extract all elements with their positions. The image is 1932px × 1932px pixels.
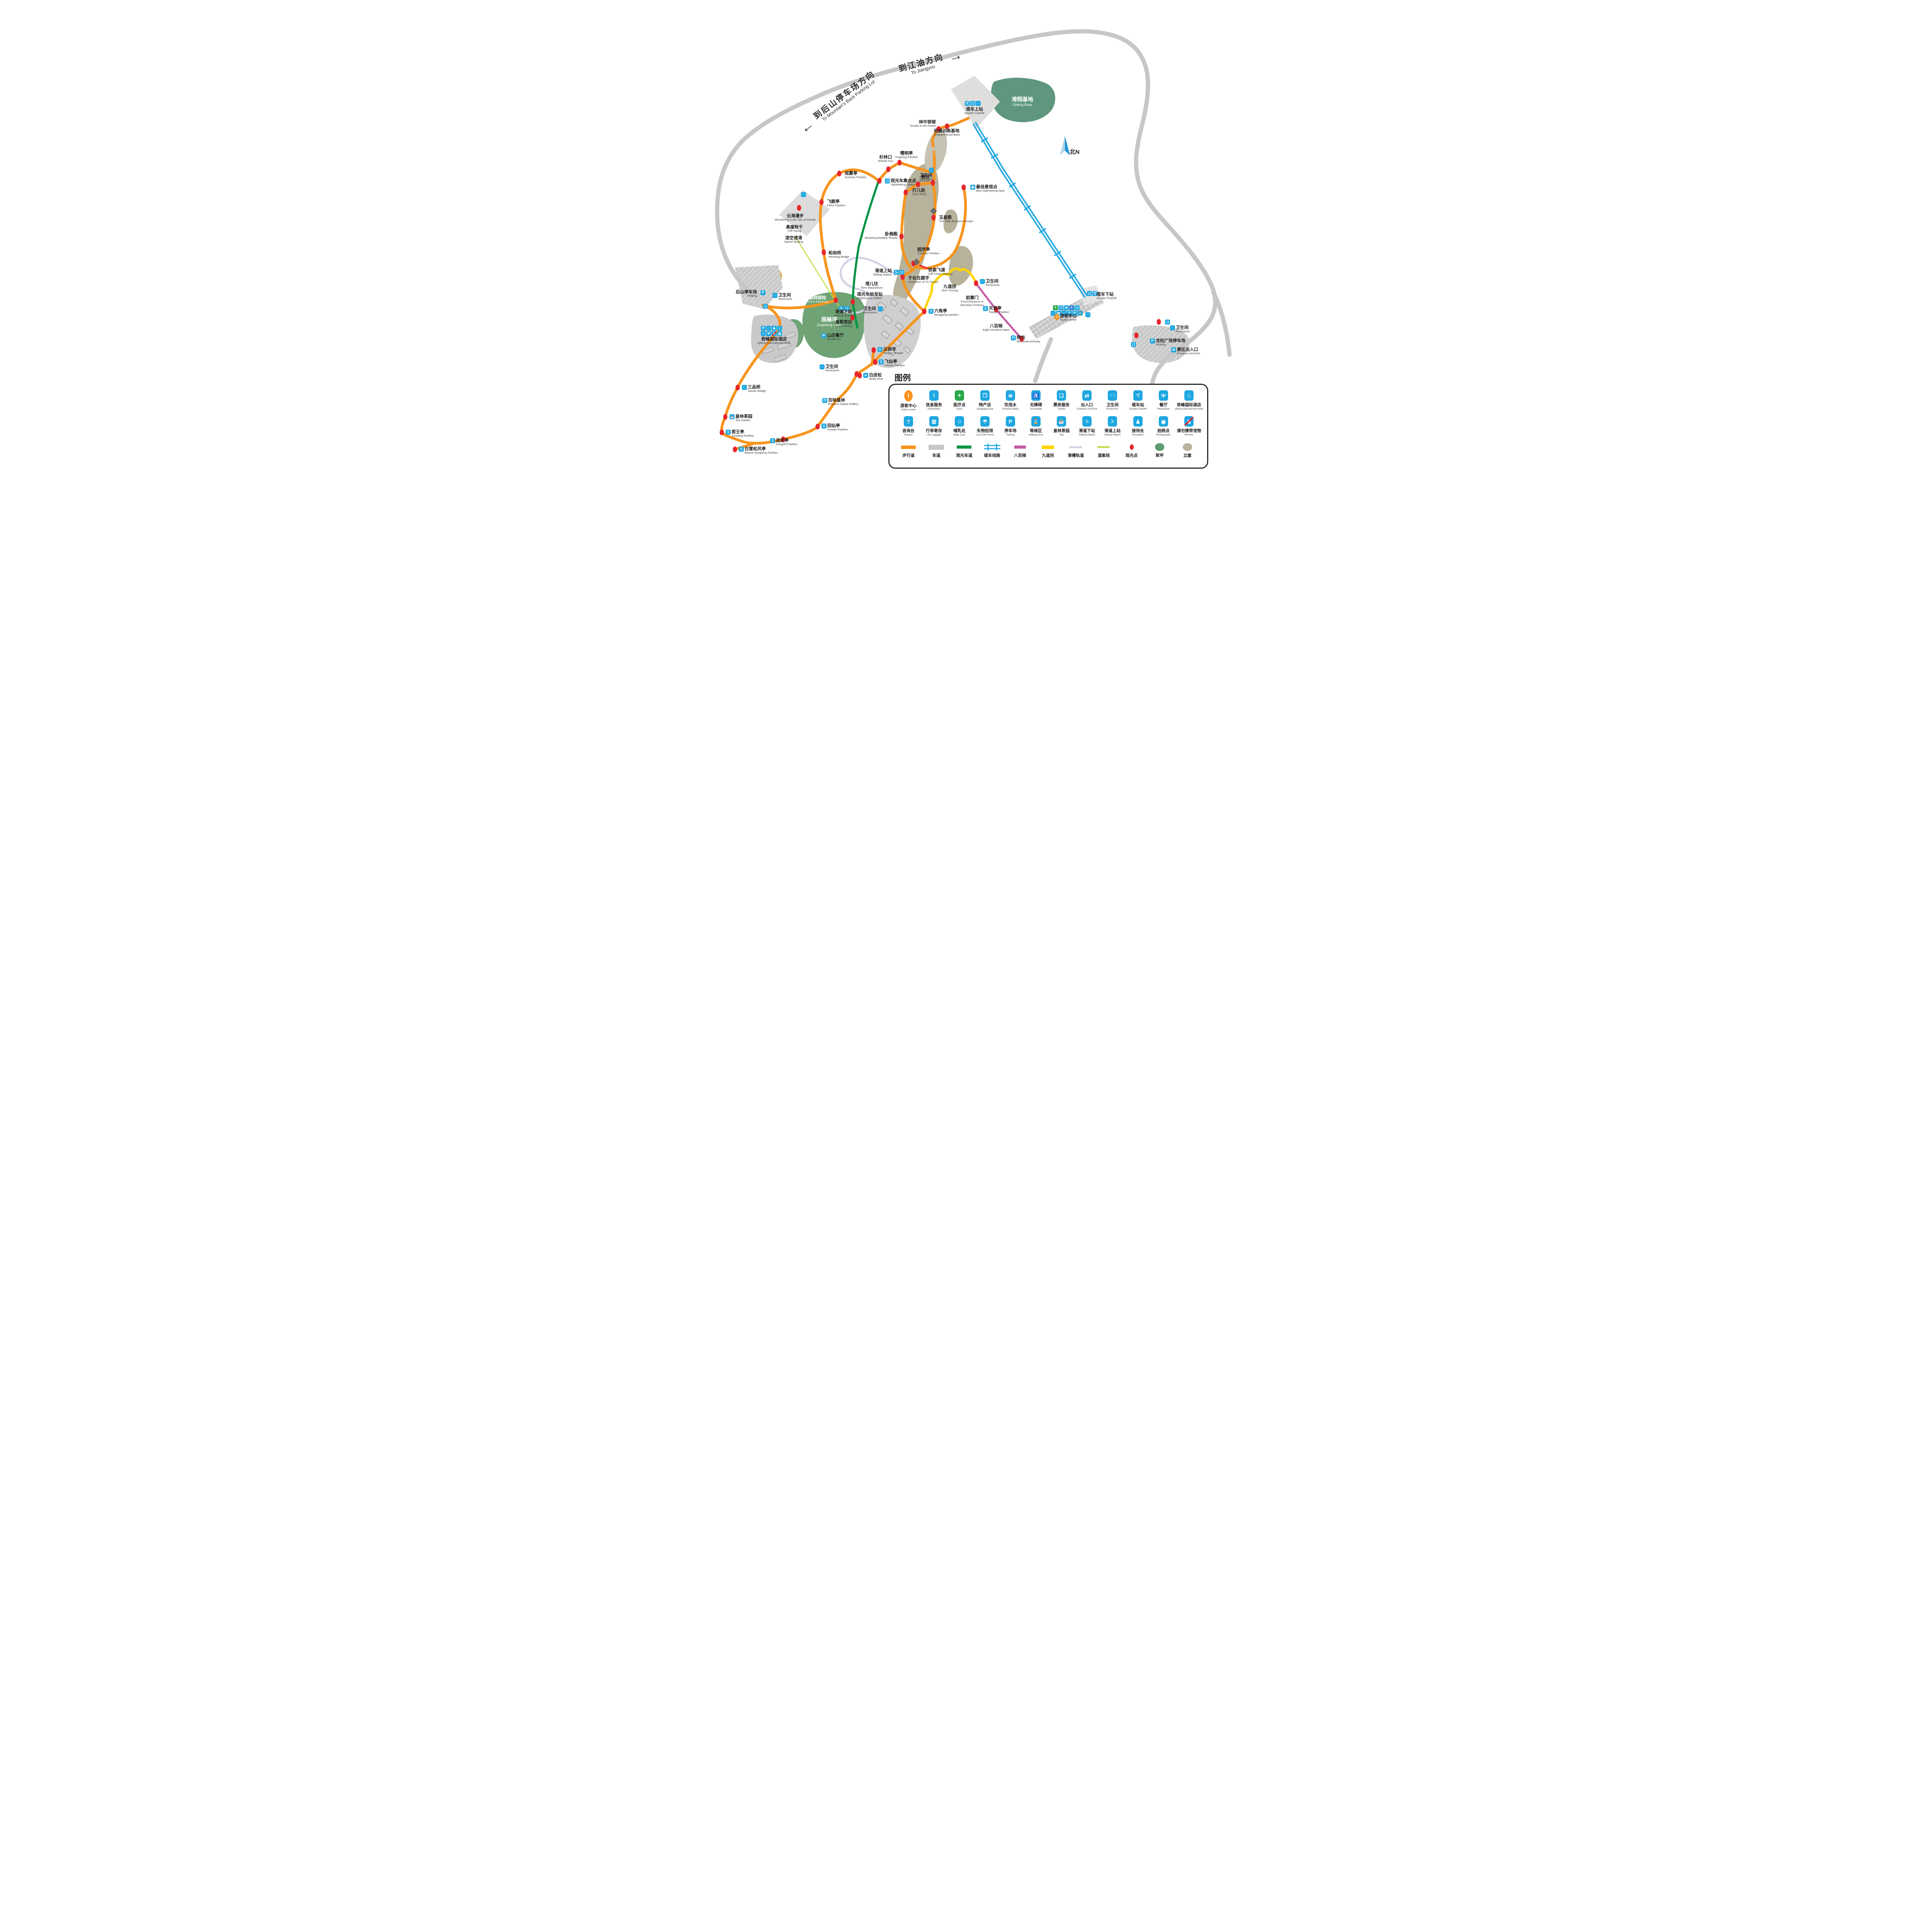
poi-restrooms: ♂♀卫生间Restrooms [820,364,839,372]
legend-label-zh: 等候区 [1030,428,1042,434]
sightseeing-spot-dot [900,234,904,240]
accessible-icon: ♿ [1069,305,1074,310]
sightseeing-spot-dot [822,250,826,255]
poi-text: 云海漫步Wondering in the Sea of Clouds [775,214,816,222]
legend-line-立崖: 立崖 [1175,443,1200,458]
sightseeing-spot-dot [974,281,978,286]
toilet-icon: ♂♀ [976,101,981,106]
ticket-icon: ❏ [970,101,975,106]
poi-label-en: Reclining Buddha Temple [865,236,898,240]
sightseeing-spot-dot [962,185,966,190]
sightseeing-spot-dot [1134,333,1139,338]
legend-label-zh: 票务服务 [1053,402,1070,408]
poi-text: 白皮松White Pine [869,373,883,381]
legend-label-en: Drinking Water [1002,408,1019,410]
poi-text: 悬崖秋千Cliff Swing [786,225,803,233]
ticket-icon: ❏ [1165,320,1170,325]
poi-label-en: Wondering in the Sea of Clouds [775,218,816,221]
sightseeing-spot-dot [723,414,728,420]
poi-text: 拓展训练基地Outward-Bund Base [934,129,960,137]
legend-line-sample [1070,443,1082,451]
icon-group: +❒≋♿❏ [1053,305,1080,310]
legend-item-accessible: ♿无障碍Accessible [1023,390,1049,411]
poi-text: 观雾亭Guanwu Pavilion [845,171,866,179]
poi-da-er-rock: 打儿岩Da'er Rock [912,188,927,196]
waiting-icon: ⌛ [1078,311,1083,316]
icon-group: ❏ [1131,342,1136,347]
toilet-icon: ♂♀ [820,364,825,369]
poi-huixian-pavilion: ♖回仙亭Huixian Pavilion [821,423,848,432]
lost-icon: ☂ [980,416,990,427]
info-icon: i [929,390,939,401]
toilet-icon: ♂♀ [1085,312,1090,317]
poi-label-en: Restrooms [986,284,1000,287]
poi-feihe-pavilion: 飞鹤亭Feihe Pavilion [827,199,845,207]
poi-text: 皇林茶园Tea Garden [735,414,752,422]
legend-item-drinking-water: ≋饮用水Drinking Water [998,390,1023,411]
poi-rock-climbing: 攀岩场Rock Climbing [928,147,947,155]
poi-text: 杉林口Shanlin Kou [878,155,893,163]
poi-label-en: Outward-Bund Base [934,133,960,136]
legend-label-zh: 滑槽轨道 [1068,452,1084,458]
legend-label-en: Enquiry [904,434,913,436]
enquiry-icon: ? [904,416,913,427]
poi-guanfeng-lawn: 观峰坪Guanfeng Lawn [817,317,842,327]
legend-line-八百梯: 八百梯 [1007,443,1033,458]
chairlift-icon [1133,390,1143,401]
legend-line-观光点: 观光点 [1119,443,1145,458]
ticket-icon: ❏ [1075,305,1080,310]
poi-tianyin-pavilion: ♖天音亭Tianyin Pavilion [983,306,1009,314]
legend-line-sample [1014,443,1026,451]
poi-text: 攀岩场Rock Climbing [928,147,947,155]
legend-label-zh: 步行道 [902,452,915,458]
legend-item-shopping-area: ❒特产店Shopping Area [972,390,998,411]
icon-group: ⌂Ψ♞▥ [761,331,782,336]
nopets-icon: ♞ [1184,416,1194,427]
sightseeing-spot-dot [720,430,724,435]
legend-label-zh: 九道拐 [1042,452,1054,458]
water-icon: ≋ [1006,390,1015,401]
icon-group: P♂♀♟i [761,326,782,331]
pavilion-icon: ♖ [878,347,883,352]
poi-nine-turning: 九道拐Nine Turning [942,284,958,293]
restaurant-icon: Ψ [766,331,771,336]
info-icon: i [777,326,782,331]
poi-text: 六角亭hexagonal pavilion [934,309,958,317]
poi-label-en: Parking [1156,343,1185,346]
sightseeing-spot-dot [932,215,936,221]
sightseeing-spot-dot [872,347,876,353]
poi-label-en: Huixian Pavilion [827,428,848,431]
poi-label-zh: 观峰坪 [821,317,837,323]
bridge-icon: ∩ [742,385,747,390]
tea-icon: ☕ [1057,416,1066,427]
legend-item-no-pets: ♞请勿携带宠物No Pets [1176,416,1202,436]
legend-line-滑槽轨道: 滑槽轨道 [1063,443,1088,458]
icon-group: ♂♀ [801,192,806,197]
legend-label-en: Visitor center [901,408,916,411]
poi-guanwu-pavilion: 观雾亭Guanwu Pavilion [845,171,866,179]
shopping-icon: ❒ [980,390,990,401]
icon-group [914,260,919,264]
poi-text: 前寨门Front Entrance ofMountain Fortress [961,296,984,307]
poi-best-sightseeing-spot: ◉最佳景观点Best Sightseeing Spot [970,185,1005,193]
legend-label-en: Information [928,408,940,410]
temple3d-icon [930,208,937,214]
scenic-area-map: 到江油方向 To Jiangyou → ← 到后山停车场方向 To Mounta… [663,0,1269,487]
legend-label-en: Baby Care [954,434,966,436]
poi-label-zh: 滑翔基地 [1012,97,1033,103]
poi-text: 景区出入口Entrance And Exit [1177,347,1200,355]
poi-label-en: Cliff Swing [787,230,801,233]
poi-label-en: Chuntai [920,179,930,182]
poi-text: 君王亭Junwang Pavilion [731,430,754,438]
legend-item-baby-care: ☺哺乳处Baby Care [947,416,972,436]
legend-label-zh: 缆车站 [1132,402,1144,408]
clinic-icon: + [955,390,964,401]
restaurant-icon: Ψ [1159,390,1168,401]
poi-text: 打儿岩Da'er Rock [912,188,927,196]
poi-text: 滑翔基地Gliding Base [1012,97,1033,107]
legend-line-草坪: 草坪 [1147,443,1172,458]
legend-line-sample [929,443,944,451]
legend-label-zh: 立崖 [1183,452,1191,458]
poi-label-en: Tianyin Pavilion [989,311,1009,314]
poi-text: 缆车下站Double Chairlift [1097,292,1116,300]
poi-label-en: Junwang Pavilion [731,434,754,437]
legend-label-en: Parking [1006,434,1015,436]
poi-label-en: Feihe Pavilion [827,204,845,207]
poi-wondering-in-the-sea-of-clouds: 云海漫步Wondering in the Sea of Clouds [775,214,816,222]
sightseeing-spot-dot [837,171,842,177]
poi-label-en: hexagonal pavilion [934,313,958,316]
poi-label-en: Gliding Base [1012,103,1032,107]
icon-group: ♂♀ [1085,312,1090,317]
legend-item-restrooms: ♂♀卫生间Restrooms [1100,390,1125,411]
legend-label-en: Clinic [956,408,963,410]
legend-item-tickets: ❏票务服务Tickets [1049,390,1074,411]
poi-text: 奇峰国际酒店Qifeng International Hotel [757,337,790,345]
poi-cliff-swing: 悬崖秋千Cliff Swing [786,225,803,233]
legend-line-sample [1130,443,1134,451]
poi-text: 塔儿坟Ta'er Mausoleum [861,282,883,290]
poi-text: 森林探险Forest Adventure [806,296,828,304]
poi-label-en: Songshi Pavilion [776,443,797,446]
poi-parking: P龙柱广场停车场Parking [1150,338,1185,347]
legend-label-zh: 哺乳处 [953,428,966,434]
legend-line-九道拐: 九道拐 [1035,443,1061,458]
north-label: 北N [1070,148,1080,156]
sightseeing-spot-dot [733,447,737,452]
poi-text: 卫生间Restrooms [825,364,839,372]
legend-label-zh: 信息服务 [926,402,942,408]
poi-text: 林中穿梭Shuttle in the Forest [910,120,936,128]
skier-icon [894,270,899,275]
icon-group: ❏ [894,270,904,275]
poi-double-chairlift: 缆车上站Double Chairlift [964,107,984,115]
poi-visitor-center: i游客中心Visitor center [1054,314,1077,322]
legend-label-en: Restrooms [1106,408,1118,410]
legend-line-sample [901,443,916,451]
poi-parking: 后山停车场Parking [736,290,757,298]
legend-line-sample [1183,443,1192,451]
icon-group: ❏ [763,304,768,309]
legend-label-zh: 医疗点 [953,402,966,408]
legend-label-zh: 车道 [932,452,940,458]
poi-the-jade-emperor-temple: 玉皇殿The Jade Emperor Temple [939,215,973,223]
legend-label-zh: 观光点 [1126,452,1138,458]
poi-songshi-pavilion: ♖送史亭Songshi Pavilion [770,438,797,446]
poi-text: 卫生间Restrooms [986,279,1000,287]
legend-line-观光车道: 观光车道 [951,443,977,458]
pine-icon: ♣ [863,373,868,378]
luggage-icon: ▥ [777,331,782,336]
luggage-icon: ▥ [929,416,939,427]
legend-label-en: Reception [1132,434,1143,436]
poi-chuntai: 春台Chuntai [920,175,930,183]
poi-gliding-base: 滑翔基地Gliding Base [1012,97,1033,107]
poi-label-en: Tea Garden [735,419,752,422]
poi-qifeng-international-hotel: 奇峰国际酒店Qifeng International Hotel [757,337,790,345]
sightseeing-spot-dot [858,373,862,379]
poi-text: 八百梯Eight Hundred Stairs [983,324,1009,332]
legend-label-zh: 八百梯 [1014,452,1026,458]
reception-icon: ♟ [1133,416,1143,427]
legend-label-zh: 行李寄存 [926,428,942,434]
poi-label-en: Shanlin Kou [878,160,893,163]
legend-item-restaurant: Ψ餐厅Restaurant [1151,390,1176,411]
legend-label-zh: 无障碍 [1030,402,1042,408]
sightseeing-spot-dot [904,190,908,196]
legend-label-zh: 滑道下站 [1079,428,1095,434]
poi-label-en: Emperor Statue Gallery [828,403,858,406]
poi-text: 游客中心Visitor center [1060,314,1077,322]
poi-text: 三品桥Sanpin Bridge [748,385,766,393]
poi-outward-bund-base: 拓展训练基地Outward-Bund Base [934,129,960,137]
poi-text: 卫生间Restrooms [1176,325,1190,333]
poi-label-en: Restrooms [1176,330,1190,333]
poi-yunyan-temple: ♖云岩寺Yunyan Temple [878,347,903,355]
legend-label-zh: 游客中心 [900,403,917,408]
sightseeing-spot-dot [834,298,838,303]
poi-restrooms: ♂♀卫生间Restrooms [980,279,1000,287]
poi-label-en: Forest Adventure [806,300,828,303]
legend-label-zh: 接待处 [1132,428,1144,434]
pavilion-icon: ♖ [726,430,731,435]
legend-services-row-1: i游客中心Visitor centeri信息服务Information+医疗点C… [896,390,1200,411]
visitor-icon: i [904,390,913,401]
poi-cliff-chain-walking: 铁索飞渡Cliff Chain Walking [928,268,952,276]
legend-label-en: Restaurant [1157,408,1170,410]
poi-text: 飞仙亭Feixian Pavilion [884,359,905,367]
legend-label-en: Tickets [1058,408,1065,410]
poi-restrooms: ♂♀卫生间Restrooms [1170,325,1190,333]
legend-line-步行道: 步行道 [896,443,921,458]
poi-front-entrance-of: 前寨门Front Entrance ofMountain Fortress [961,296,984,307]
sightseeing-spot-dot [886,167,891,172]
legend-label-en: Gliding Station [1079,434,1095,436]
legend-label-en: Shopping Area [977,408,993,410]
poi-text: 凌空速滑Speed Skating [784,236,803,244]
legend-line-sample [1042,443,1054,451]
legend-lines-row: 步行道车道观光车道缆车线路八百梯九道拐滑槽轨道溜索线观光点草坪立崖 [896,443,1200,458]
legend-label-en: Lost And Found [976,434,994,436]
poi-text: 春台Chuntai [920,175,930,183]
legend-label-zh: 奇峰国际酒店 [1177,402,1201,408]
poi-text: 后山停车场Parking [736,290,757,298]
toilet-icon: ♂♀ [801,192,806,197]
legend-item-lost-and-found: ☂失物招领Lost And Found [972,416,998,436]
poi-emperor-statue-gallery: Π百味皇林Emperor Statue Gallery [822,398,858,406]
legend-item-left-luggage: ▥行李寄存Left Luggage [921,416,947,436]
legend-line-sample [957,443,971,451]
legend-label-zh: 草坪 [1155,452,1163,458]
poi-text: 滑道上站Gliding Station [873,269,892,277]
poi-text: 嘤明亭Yingming Pavilion [895,151,918,159]
poi-restaurant: Ψ山庄餐厅Restaurant [821,333,844,341]
sightseeing-spot-dot [851,299,855,305]
waiting-icon: ⌛ [1031,416,1041,427]
poi-label-en: Best Sightseeing Spot [976,189,1005,192]
skier-icon [1082,416,1092,427]
icon-group: ♂♀ [929,168,934,173]
ticket-icon: ❏ [1131,342,1136,347]
poi-hexagonal-pavilion: ♖六角亭hexagonal pavilion [929,309,958,317]
legend-label-zh: 咨询台 [902,428,915,434]
baby-icon: ☺ [955,416,964,427]
visitor-icon: i [1054,314,1059,320]
sightseeing-spot-dot [873,359,878,365]
sightseeing-spot-dot [898,160,902,166]
poi-sightseeing-station: ❏观光车集合点Sightseeing Station [885,179,916,187]
legend-item-reception: ♟接待处Reception [1125,416,1151,436]
chairlift-icon [965,101,970,106]
icon-group: ❏♂♀ [965,101,981,106]
poi-text: 最佳景观点Best Sightseeing Spot [976,185,1005,193]
poi-text: 白雪松风亭Baixue Songfeng Pavilion [745,447,777,455]
camera-icon: ◉ [970,185,975,190]
poi-forest-adventure: 森林探险Forest Adventure [806,296,828,304]
legend-label-en: Waiting Area [1029,434,1043,436]
sightseeing-spot-dot [820,199,824,205]
poi-entrance-and-exit: ⇄景区出入口Entrance And Exit [1171,347,1200,355]
poi-sightseeing-station: 观光车始发站Sightseeing Station [857,292,883,300]
legend-item-visitor-center: i游客中心Visitor center [896,390,921,411]
poi-heshang-bridge: 和尚桥Heshang Bridge [828,251,849,259]
poi-text: 卧佛殿Reclining Buddha Temple [865,232,898,240]
sightseeing-spot-dot [736,385,740,391]
poi-label-en: Double Chairlift [1097,297,1116,300]
poi-restrooms: ♂♀卫生间Restrooms [772,293,792,301]
poi-label-en: Ta'er Mausoleum [861,286,883,289]
hotel-icon: ⌂ [1184,390,1194,401]
poi-label-en: Sightseeing Station [891,183,916,186]
poi-reclining-buddha-temple: 卧佛殿Reclining Buddha Temple [865,232,898,240]
poi-label-en: Sanpin Bridge [748,389,766,393]
poi-label-en: Gliding Station [873,273,892,276]
legend-item-photography: ◉拍照点Photography [1151,416,1176,436]
poi-text: 云岩寺Yunyan Temple [883,347,903,355]
poi-label-en: Restrooms [825,369,839,372]
legend-label-en: Left Luggage [927,434,941,436]
legend-label-zh: 请勿携带宠物 [1177,428,1201,434]
camera-icon: ◉ [1159,416,1168,427]
legend-label-en: Entrance And Exit [1077,408,1097,410]
ticket-icon: ❏ [1057,390,1066,401]
legend-label-zh: 特产店 [979,402,991,408]
poi-label-en: Cliff Chain Walking [928,272,952,276]
poi-inscription-of-yu-youren: 于右任题字Inscription of Yu Youren [908,276,939,284]
poi-memorial-archway: Π牌坊Memorial archway [1011,335,1040,344]
pavilion-icon: ♖ [739,447,744,452]
legend-label-en: Tea [1060,434,1063,436]
legend-line-sample [1097,443,1110,451]
poi-gliding-station: 滑道上站Gliding Station [873,269,892,277]
toilet-icon: ♂♀ [980,279,985,284]
legend-label-zh: 皇林茶园 [1053,428,1070,434]
poi-chaoran-pavilion: 超然亭Chaoran Pavilion [917,247,939,255]
legend-label-zh: 失物招领 [977,428,993,434]
legend-label-en: Qifeng International Hotel [1175,408,1203,410]
legend-label-en: No Pets [1184,434,1193,436]
legend-label-zh: 饮用水 [1004,402,1017,408]
legend-line-车道: 车道 [923,443,949,458]
poi-label-en: Parking [747,294,757,298]
poi-text: 龙柱广场停车场Parking [1156,338,1185,347]
legend-item-gliding-station: 滑道下站Gliding Station [1074,416,1100,436]
clinic-icon: + [1053,305,1058,310]
poi-label-en: Restrooms [863,311,877,314]
sightseeing-spot-dot [878,178,882,184]
poi-label-en: Mountain Fortress [961,304,984,307]
legend-label-zh: 卫生间 [1106,402,1119,408]
poi-label-en: Restrooms [778,298,792,301]
poi-label-en: Yunyan Temple [883,352,903,355]
legend-line-溜索线: 溜索线 [1091,443,1116,458]
toilet-icon: ♂♀ [878,306,883,311]
legend-services-row-2: ?咨询台Enquiry▥行李寄存Left Luggage☺哺乳处Baby Car… [896,416,1200,436]
poi-text: 观光车始发站Sightseeing Station [857,292,883,300]
toilet-icon: ♂♀ [929,168,934,173]
icon-group: P [760,290,765,295]
poi-label-en: Da'er Rock [912,193,927,196]
legend-label-zh: 停车场 [1004,428,1017,434]
poi-yingming-pavilion: 嘤明亭Yingming Pavilion [895,151,918,159]
ticket-icon: ❏ [899,270,904,275]
poi-text: 天音亭Tianyin Pavilion [989,306,1009,314]
poi-text: 牌坊Memorial archway [1017,335,1040,344]
poi-text: 卫生间Restrooms [863,306,877,315]
poi-restrooms: 卫生间Restrooms♂♀ [863,306,883,315]
poi-tea-garden: ☕皇林茶园Tea Garden [730,414,752,422]
poi-label-en: Guanwu Pavilion [845,176,866,179]
north-indicator: 北N [1070,138,1080,156]
parking-icon: P [1150,338,1155,344]
poi-label-en: White Pine [869,378,883,381]
poi-label-en: Chaoran Pavilion [917,252,939,255]
poi-white-pine: ♣白皮松White Pine [863,373,883,381]
poi-label-en: Shuttle in the Forest [910,124,936,128]
icon-group: ❏ [1165,320,1170,325]
pavilion-icon: ♖ [879,359,884,364]
legend-label-zh: 拍照点 [1157,428,1170,434]
poi-eight-hundred-stairs: 八百梯Eight Hundred Stairs [983,324,1009,332]
poi-baixue-songfeng-pavilion: ♖白雪松风亭Baixue Songfeng Pavilion [739,447,777,455]
icon-group: ❏ [1087,291,1097,296]
poi-label-en: Inscription of Yu Youren [908,281,939,284]
archway-icon: Π [1011,335,1016,340]
